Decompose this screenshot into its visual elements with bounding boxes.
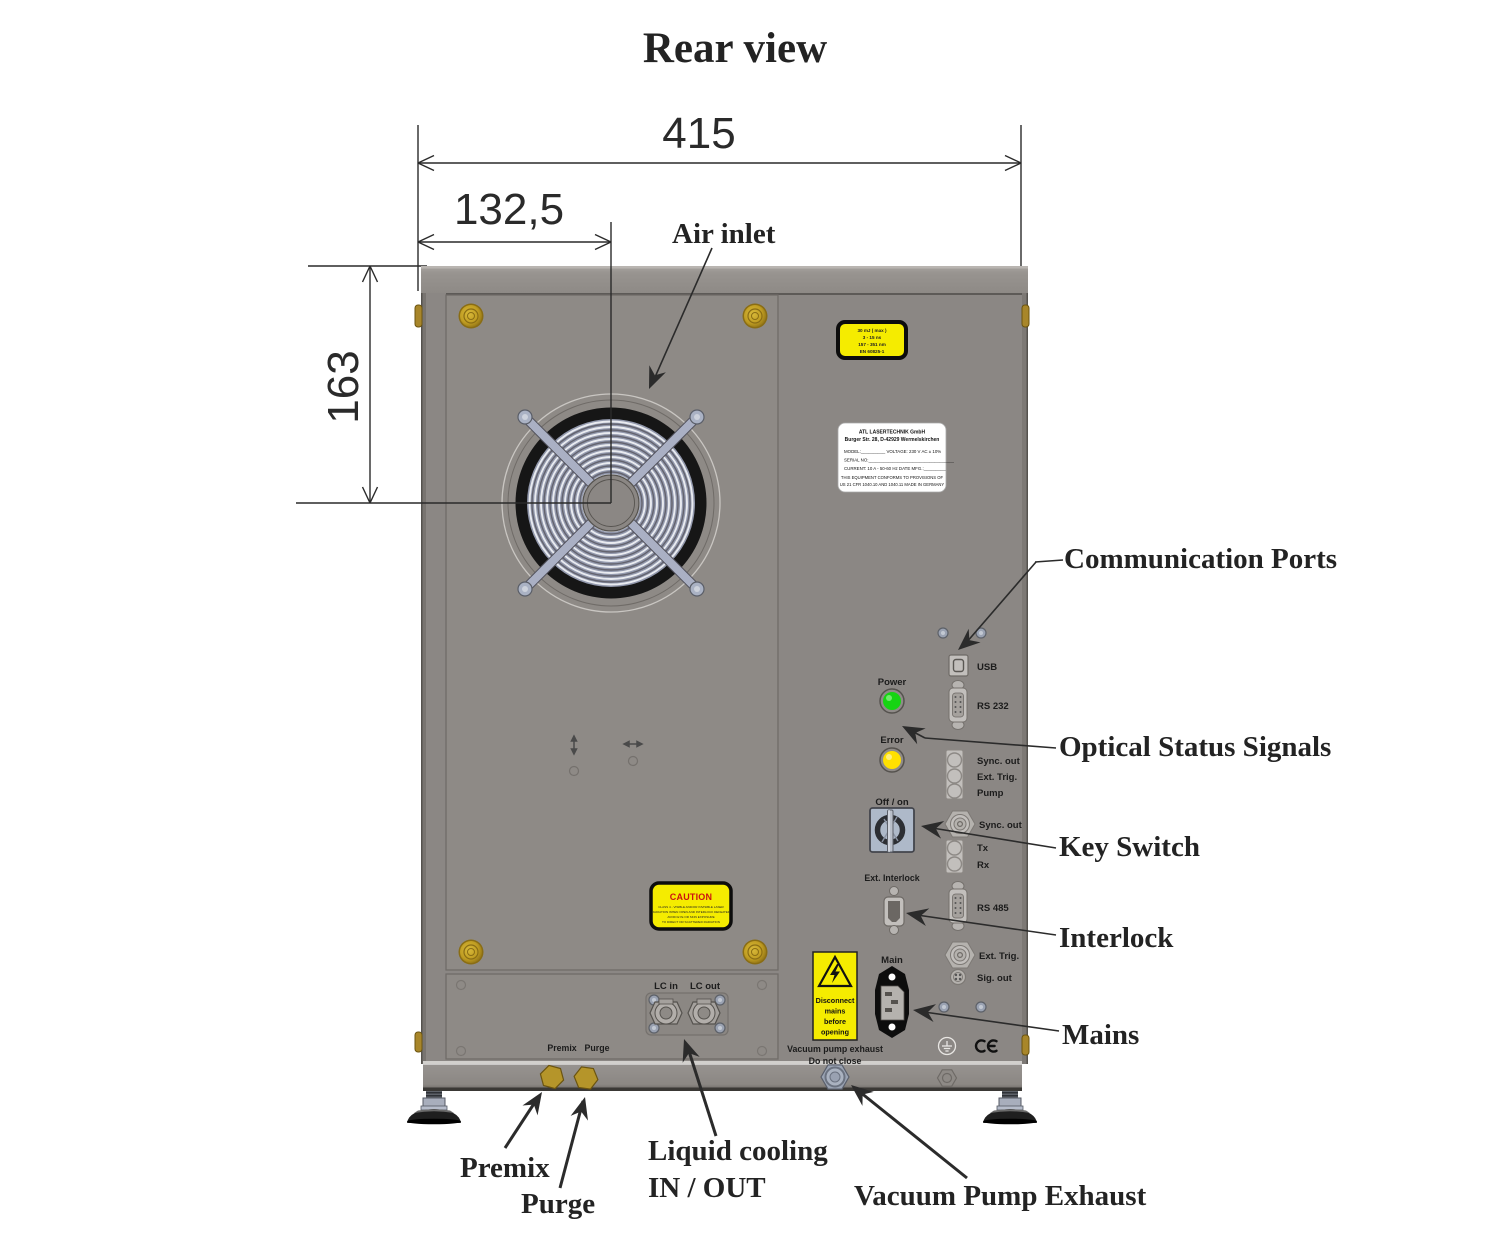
svg-text:Sync. out: Sync. out	[977, 756, 1021, 767]
svg-text:Premix: Premix	[547, 1043, 576, 1053]
svg-text:LC in: LC in	[654, 981, 678, 992]
svg-text:THIS EQUIPMENT CONFORMS TO PRO: THIS EQUIPMENT CONFORMS TO PROVISIONS OF	[841, 475, 944, 480]
svg-text:Sig. out: Sig. out	[977, 973, 1013, 984]
svg-text:Main: Main	[881, 955, 903, 966]
svg-text:Optical Status Signals: Optical Status Signals	[1059, 731, 1331, 763]
svg-text:132,5: 132,5	[454, 185, 564, 234]
svg-text:163: 163	[319, 350, 368, 423]
svg-text:Burger Str. 28, D-42929 Wermel: Burger Str. 28, D-42929 Wermelskirchen	[845, 437, 940, 443]
svg-text:RADIATION WHEN OPEN AND INTERL: RADIATION WHEN OPEN AND INTERLOCK DEFEAT…	[652, 910, 731, 914]
svg-text:Error: Error	[880, 735, 904, 746]
svg-text:before: before	[824, 1017, 846, 1026]
svg-text:Tx: Tx	[977, 843, 989, 854]
svg-text:EN 60825-1: EN 60825-1	[860, 349, 885, 354]
svg-text:Ext. Interlock: Ext. Interlock	[864, 873, 919, 883]
svg-text:Vacuum pump exhaust: Vacuum pump exhaust	[787, 1044, 883, 1054]
svg-text:Communication Ports: Communication Ports	[1064, 543, 1337, 575]
svg-text:Pump: Pump	[977, 788, 1004, 799]
svg-text:RS 232: RS 232	[977, 701, 1009, 712]
svg-text:Mains: Mains	[1062, 1019, 1139, 1051]
svg-text:Vacuum Pump Exhaust: Vacuum Pump Exhaust	[854, 1180, 1147, 1212]
svg-text:Ext. Trig.: Ext. Trig.	[979, 951, 1019, 962]
svg-text:3 - 15 ns: 3 - 15 ns	[863, 335, 882, 340]
svg-text:LC out: LC out	[690, 981, 721, 992]
svg-text:MODEL:__________ VOLTAGE: 230: MODEL:__________ VOLTAGE: 230 V AC ± 10%	[844, 449, 941, 454]
svg-text:Premix: Premix	[460, 1152, 550, 1184]
svg-text:US 21 CFR 1040.10 AND 1040.11: US 21 CFR 1040.10 AND 1040.11 MADE IN GE…	[840, 482, 945, 487]
svg-text:Purge: Purge	[585, 1043, 610, 1053]
svg-text:AVOID EYE OR SKIN EXPOSURE: AVOID EYE OR SKIN EXPOSURE	[667, 915, 714, 919]
svg-text:Liquid cooling: Liquid cooling	[648, 1135, 828, 1167]
svg-text:Interlock: Interlock	[1059, 922, 1174, 954]
svg-text:Rx: Rx	[977, 860, 990, 871]
svg-text:Off / on: Off / on	[875, 797, 908, 808]
svg-text:Key Switch: Key Switch	[1059, 831, 1200, 863]
svg-text:Purge: Purge	[521, 1188, 595, 1220]
svg-text:opening: opening	[821, 1028, 849, 1037]
svg-text:Rear view: Rear view	[643, 25, 827, 72]
svg-text:TO DIRECT OR SCATTERED RADIATI: TO DIRECT OR SCATTERED RADIATION	[662, 920, 720, 924]
svg-text:157 - 351 nm: 157 - 351 nm	[858, 342, 886, 347]
svg-text:ATL LASERTECHNIK GmbH: ATL LASERTECHNIK GmbH	[859, 430, 926, 436]
svg-text:Ext. Trig.: Ext. Trig.	[977, 772, 1017, 783]
svg-text:CURRENT: 10 A - 50-60 Hz DATE: CURRENT: 10 A - 50-60 Hz DATE MFG.:_____…	[844, 466, 946, 471]
svg-text:Air inlet: Air inlet	[672, 218, 776, 250]
svg-text:Power: Power	[878, 677, 907, 688]
svg-text:RS 485: RS 485	[977, 903, 1009, 914]
svg-text:30 mJ ( max ): 30 mJ ( max )	[857, 328, 887, 333]
svg-text:Disconnect: Disconnect	[816, 996, 855, 1005]
svg-text:SERIAL NO:____________________: SERIAL NO:______________________________…	[844, 458, 955, 463]
svg-text:415: 415	[662, 109, 735, 158]
svg-text:USB: USB	[977, 662, 997, 673]
svg-text:IN / OUT: IN / OUT	[648, 1172, 766, 1204]
svg-text:CLASS 4 - VISIBLE AND/OR INVIS: CLASS 4 - VISIBLE AND/OR INVISIBLE LASER	[658, 905, 724, 909]
svg-text:Sync. out: Sync. out	[979, 820, 1023, 831]
svg-text:CAUTION: CAUTION	[670, 892, 712, 902]
svg-text:mains: mains	[825, 1007, 846, 1016]
